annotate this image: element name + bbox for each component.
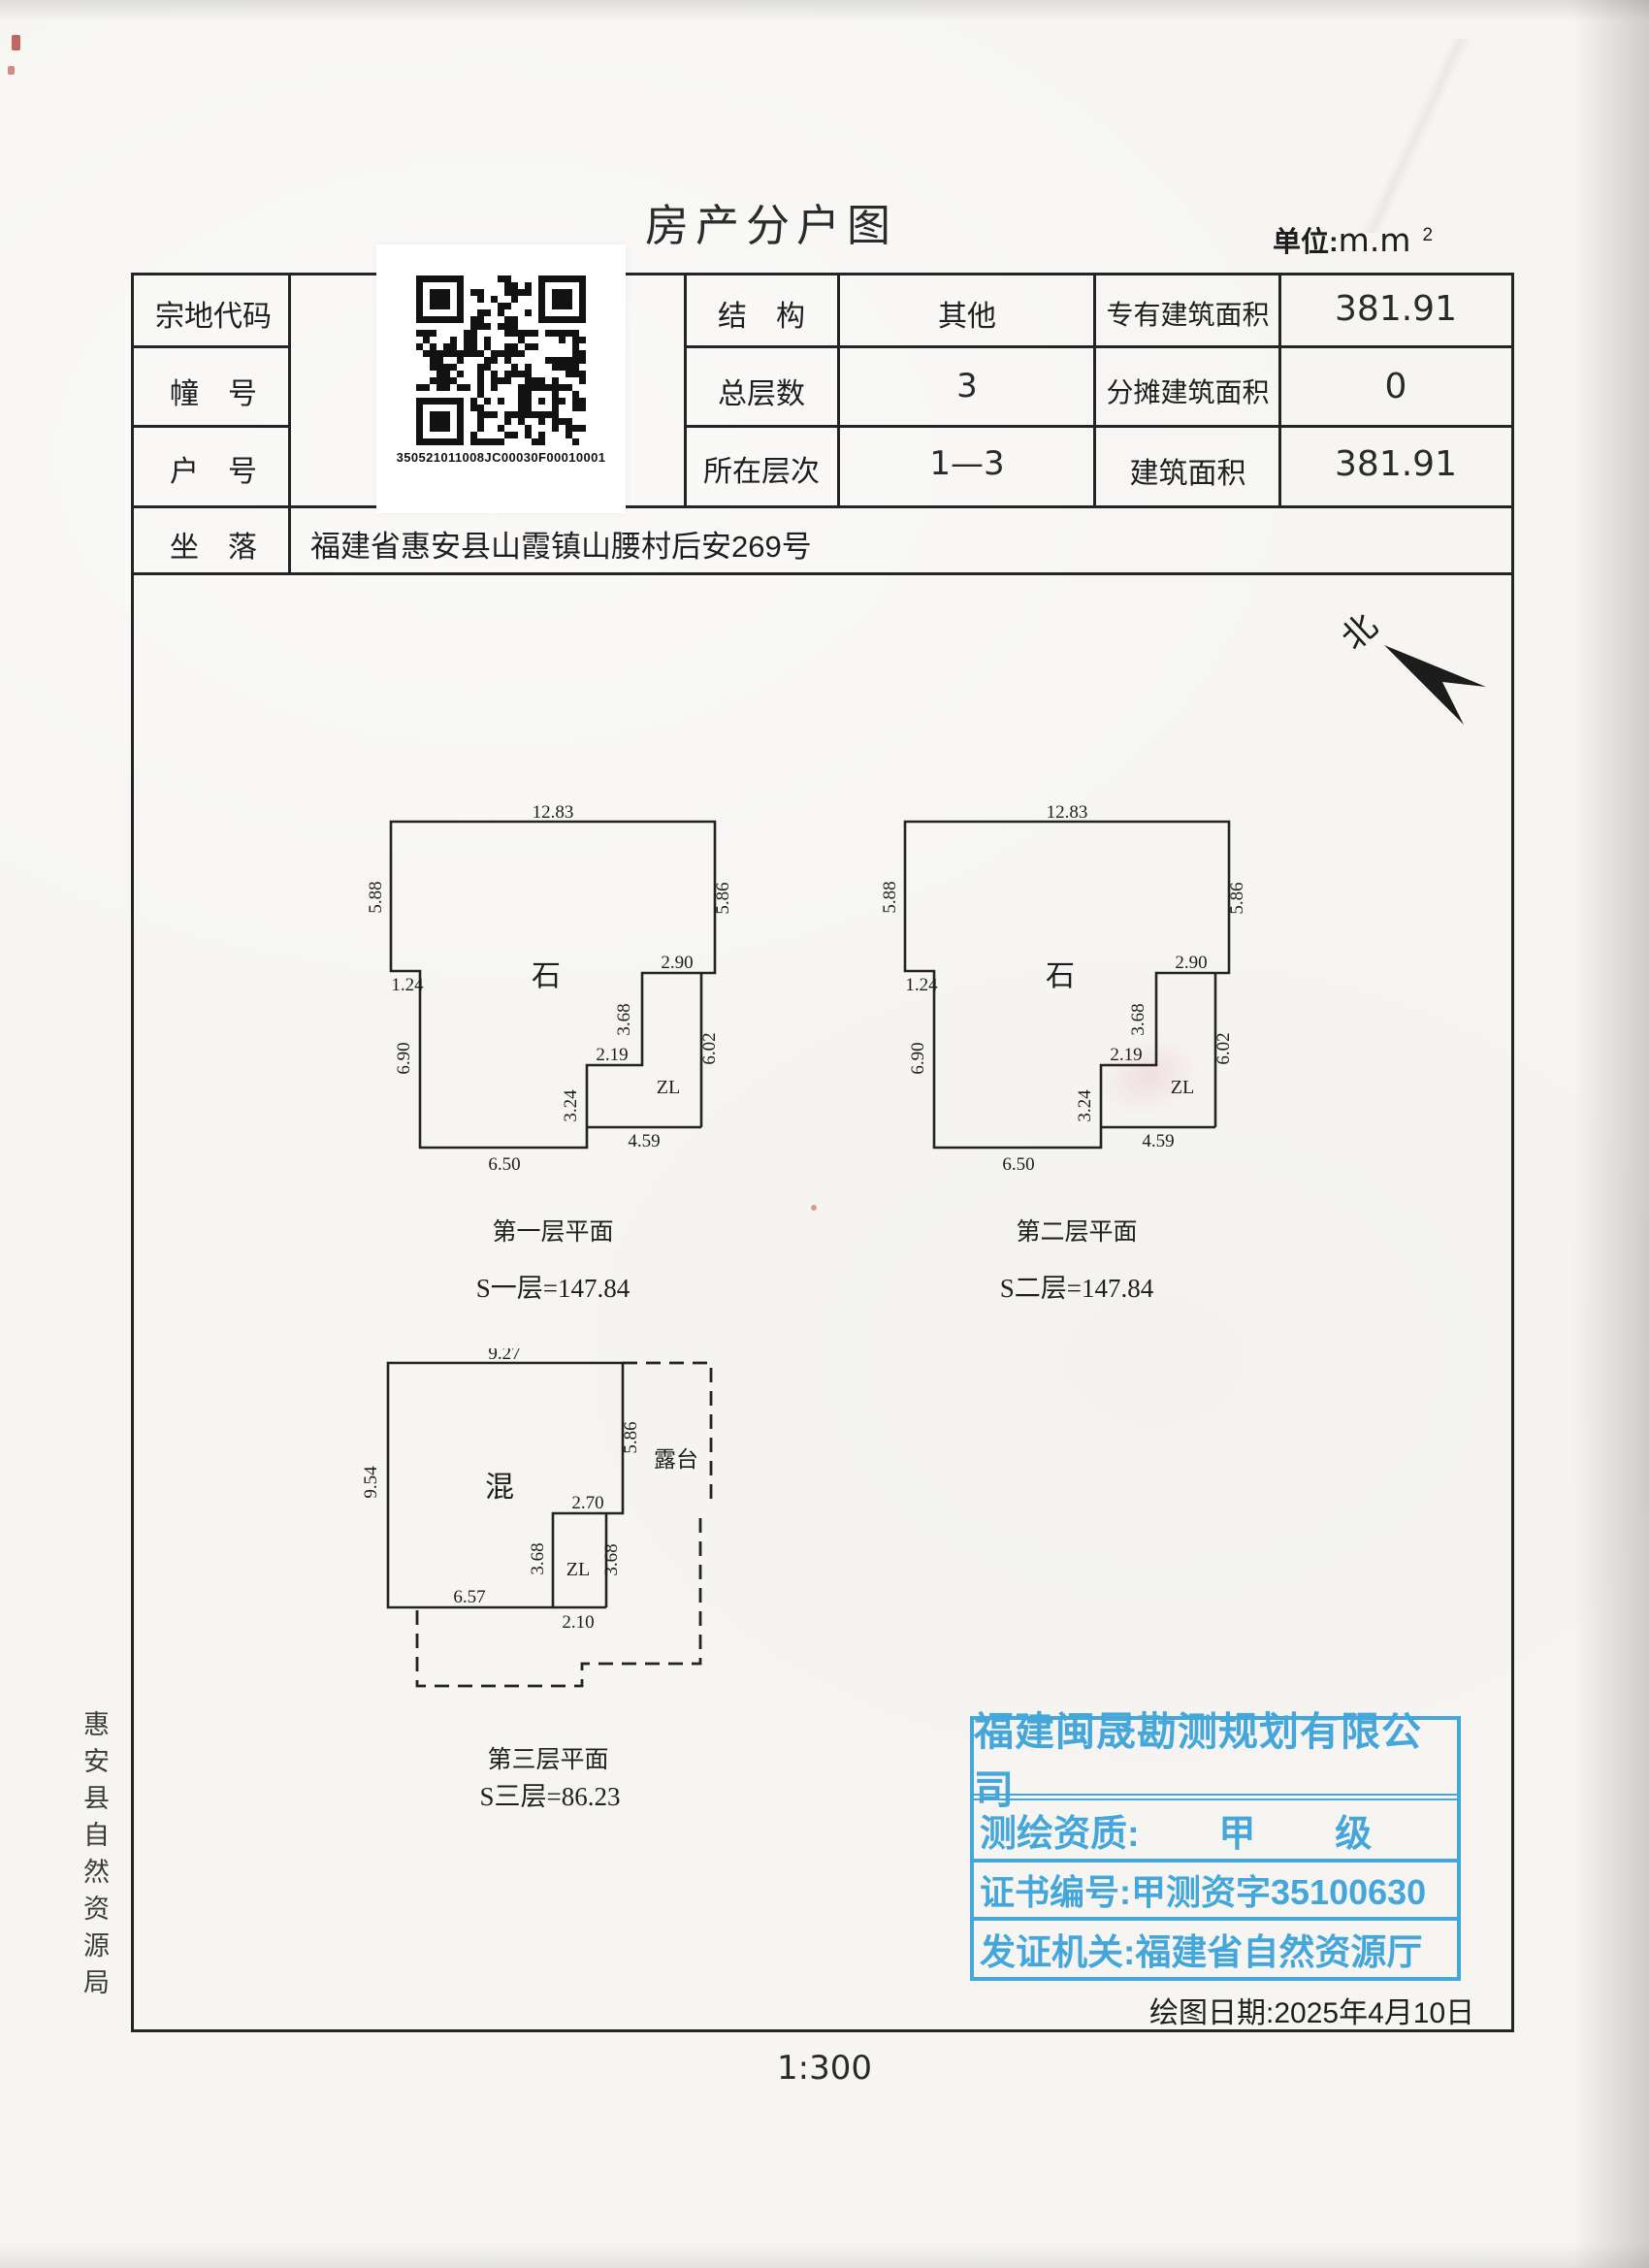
draw-date: 绘图日期:2025年4月10日	[1149, 1989, 1474, 2031]
table-line-vertical	[684, 273, 687, 508]
table-line-vertical	[288, 273, 291, 575]
dim-label: 12.83	[533, 805, 574, 823]
dim-label: 6.02	[1213, 1032, 1234, 1064]
table-line	[131, 505, 1511, 508]
stamp-qualification-value: 甲 级	[1140, 1803, 1451, 1857]
red-speck	[811, 1205, 817, 1211]
zl-label: ZL	[566, 1559, 590, 1580]
plan1-caption: 第一层平面	[446, 1213, 660, 1247]
frame-top-line	[131, 273, 1514, 275]
unit-note: 单位:m.m2	[1273, 219, 1433, 260]
dim-label: 3.68	[614, 1003, 634, 1035]
location-value: 福建省惠安县山霞镇山腰村后安269号	[310, 522, 812, 566]
page-title: 房产分户图	[635, 190, 907, 253]
material-label: 石	[532, 960, 561, 992]
plan3-area: S三层=86.23	[439, 1775, 661, 1813]
dim-label: 9.54	[361, 1466, 381, 1499]
parcel-code-label: 宗地代码	[145, 292, 281, 335]
plan2-area: S二层=147.84	[960, 1267, 1193, 1305]
floor-plan-1: 12.83 5.88 5.86 2.90 石 1.24 3.68 6.02 2.…	[369, 805, 747, 1183]
dim-label: 2.70	[571, 1493, 603, 1513]
building-no-label: 幢 号	[145, 370, 281, 412]
stamp-company: 福建闽晟勘测规划有限公司	[974, 1720, 1457, 1800]
structure-label: 结 构	[689, 292, 834, 335]
dim-label: 2.19	[1110, 1045, 1142, 1065]
dim-label: 4.59	[628, 1131, 660, 1151]
exclusive-area-label: 专有建筑面积	[1098, 294, 1277, 333]
red-mark	[12, 35, 20, 50]
margin-agency: 惠安县自然资源局	[76, 1710, 113, 2011]
shared-area-label: 分摊建筑面积	[1098, 372, 1277, 410]
terrace-label: 露台	[654, 1447, 698, 1472]
total-floors-value: 3	[842, 367, 1092, 405]
floor-plan-3: 9.27 9.54 5.86 露台 混 2.70 3.68 ZL 3.68 6.…	[359, 1348, 747, 1727]
building-area-value: 381.91	[1282, 444, 1509, 484]
dim-label: 9.27	[488, 1348, 520, 1364]
dim-label: 6.50	[1002, 1154, 1034, 1175]
shared-area-value: 0	[1282, 367, 1509, 406]
floor-level-value: 1—3	[842, 444, 1092, 483]
dim-label: 3.68	[528, 1542, 548, 1574]
frame-right-line	[1511, 273, 1514, 2032]
household-no-label: 户 号	[145, 447, 281, 490]
dim-label: 6.57	[453, 1587, 485, 1607]
table-line	[131, 425, 288, 428]
floor-plan-2: 12.83 5.88 5.86 2.90 石 1.24 3.68 6.02 2.…	[883, 805, 1261, 1183]
stamp-certificate-label: 证书编号:	[980, 1864, 1131, 1915]
dim-label: 4.59	[1142, 1131, 1174, 1151]
table-line-vertical	[1093, 273, 1096, 508]
table-line	[684, 425, 1511, 428]
zl-label: ZL	[657, 1077, 680, 1098]
dim-label: 3.68	[1128, 1003, 1148, 1035]
table-line	[131, 345, 288, 348]
plan1-area: S一层=147.84	[436, 1267, 669, 1305]
stamp-certificate-row: 证书编号: 甲测资字35100630	[974, 1863, 1457, 1921]
building-area-label: 建筑面积	[1098, 449, 1277, 492]
plan3-caption: 第三层平面	[441, 1740, 655, 1775]
table-line-vertical	[837, 273, 840, 508]
total-floors-label: 总层数	[689, 370, 834, 412]
stamp-authority-value: 福建省自然资源厅	[1135, 1923, 1422, 1975]
table-line	[684, 345, 1511, 348]
dim-label: 3.68	[601, 1543, 622, 1575]
dim-label: 2.90	[661, 953, 693, 973]
qr-number: 350521011008JC00030F00010001	[376, 450, 626, 465]
unit-value: m.m	[1339, 221, 1411, 259]
stamp-certificate-value: 甲测资字35100630	[1131, 1864, 1426, 1915]
qr-sticker: 350521011008JC00030F00010001	[376, 244, 626, 513]
dim-label: 5.88	[883, 881, 900, 913]
table-line	[131, 572, 1511, 575]
stamp-authority-label: 发证机关:	[980, 1923, 1135, 1975]
dim-label: 1.24	[905, 975, 938, 995]
material-label: 混	[485, 1472, 514, 1504]
stamp-authority-row: 发证机关: 福建省自然资源厅	[974, 1921, 1457, 1977]
red-mark	[8, 66, 15, 75]
crease	[1203, 39, 1630, 233]
structure-value: 其他	[842, 292, 1092, 335]
exclusive-area-value: 381.91	[1282, 289, 1509, 329]
plan2-caption: 第二层平面	[970, 1213, 1183, 1247]
unit-label: 单位:	[1273, 227, 1339, 258]
floor-level-label: 所在层次	[689, 447, 834, 490]
qr-code	[416, 275, 586, 445]
dim-label: 5.86	[713, 882, 733, 914]
frame-left-line	[131, 273, 134, 2032]
north-arrow-icon	[1373, 635, 1499, 737]
material-label: 石	[1046, 960, 1075, 992]
dim-label: 6.50	[488, 1154, 520, 1175]
stamp-qualification-label: 测绘资质:	[980, 1803, 1140, 1857]
location-label: 坐 落	[145, 523, 281, 566]
stamp-grade-char: 级	[1335, 1803, 1372, 1857]
dim-label: 1.24	[391, 975, 424, 995]
scanned-document: 房产分户图 单位:m.m2 宗地代码 幢 号 户 号 坐 落 福建省惠安县山霞镇…	[0, 0, 1649, 2268]
dim-label: 2.10	[562, 1612, 594, 1633]
zl-label: ZL	[1171, 1077, 1194, 1098]
surveyor-stamp: 福建闽晟勘测规划有限公司 测绘资质: 甲 级 证书编号: 甲测资字3510063…	[970, 1716, 1461, 1981]
table-line-vertical	[1278, 273, 1281, 508]
dim-label: 12.83	[1047, 805, 1088, 823]
dim-label: 5.86	[621, 1421, 641, 1453]
map-scale: 1:300	[766, 2049, 883, 2088]
dim-label: 5.86	[1227, 882, 1247, 914]
dim-label: 2.19	[596, 1045, 628, 1065]
dim-label: 6.02	[699, 1032, 720, 1064]
dim-label: 6.90	[394, 1042, 414, 1074]
dim-label: 3.24	[561, 1089, 581, 1122]
dim-label: 6.90	[908, 1042, 928, 1074]
unit-superscript: 2	[1422, 225, 1433, 245]
stamp-grade-char: 甲	[1218, 1803, 1255, 1857]
dim-label: 2.90	[1175, 953, 1207, 973]
dim-label: 3.24	[1075, 1089, 1095, 1122]
stamp-qualification-row: 测绘资质: 甲 级	[974, 1800, 1457, 1863]
dim-label: 5.88	[369, 881, 386, 913]
